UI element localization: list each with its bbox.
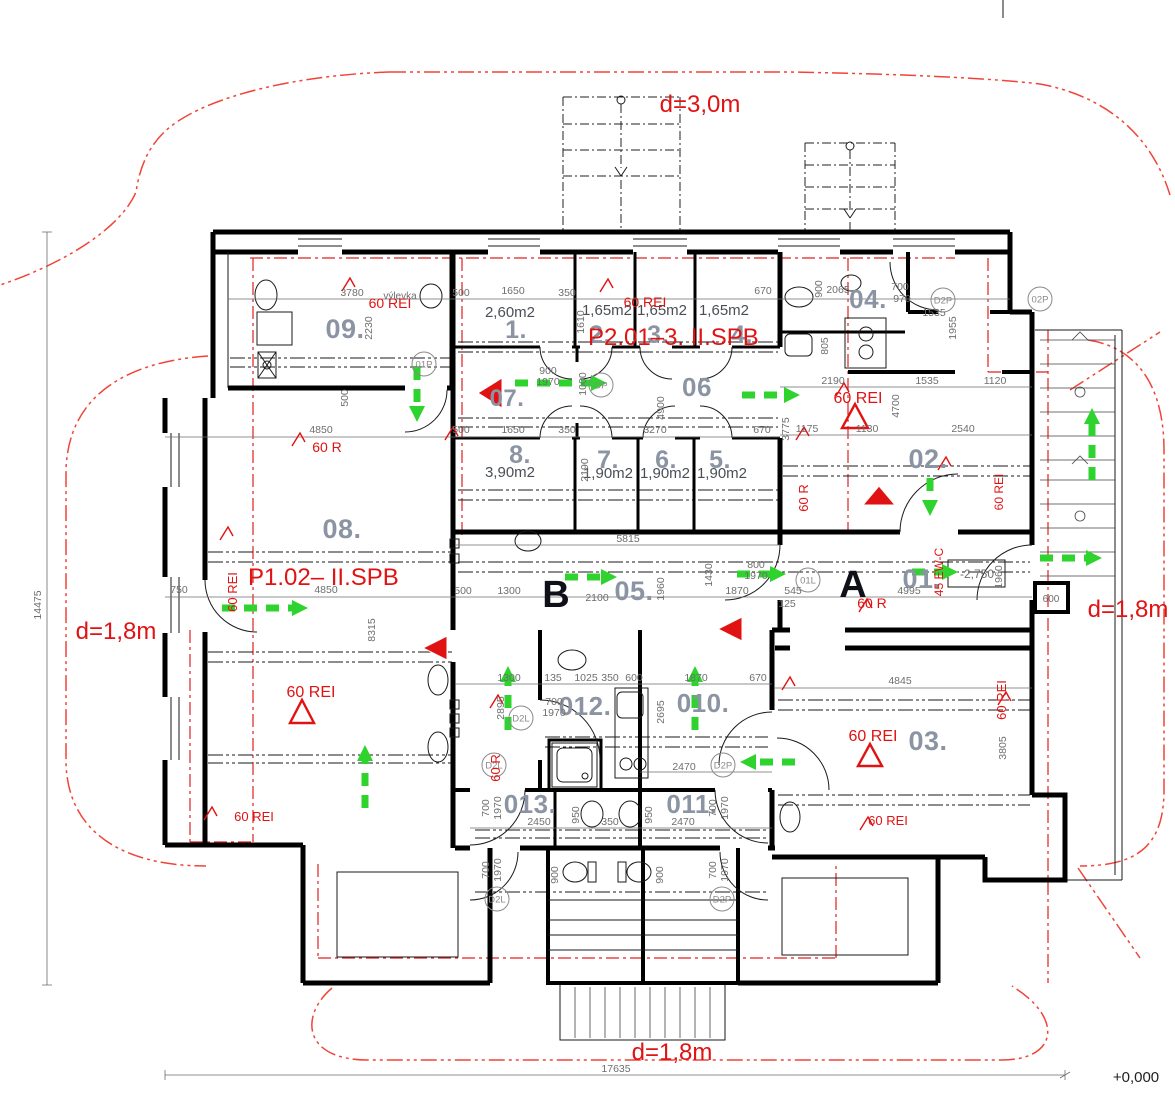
door-tag-label: 02P [1032, 295, 1049, 306]
dimension-label: 3775 [780, 417, 792, 441]
basin-icon [780, 802, 800, 832]
dimension-label: 8315 [366, 618, 378, 642]
porch-steps [575, 987, 710, 1038]
leader-hook [292, 433, 305, 446]
floor-drain-icon [258, 352, 276, 378]
dimension-label: 1130 [856, 423, 879, 435]
stair-down-arrow [615, 167, 627, 176]
door-tag-label: DP [594, 381, 607, 392]
porch-outline [560, 985, 725, 1040]
basin-icon [619, 801, 641, 827]
sink-icon [255, 280, 277, 310]
dimension-label: 135 [544, 672, 562, 684]
fire-annotation-label: 60 R [312, 439, 342, 455]
door-arc [405, 390, 447, 432]
stove-icon [845, 318, 886, 368]
dimension-label: 2470 [671, 816, 695, 828]
dimension-label: 4850 [314, 584, 338, 596]
fire-triangle-hollow [858, 744, 882, 766]
dimension-label: 1970 [744, 570, 768, 582]
room-area-label: 1,90m2 [640, 465, 690, 482]
toilet-icon [618, 862, 651, 882]
boundary-left [66, 356, 208, 866]
dimension-label: 1870 [684, 672, 708, 684]
escape-arrow-head [292, 600, 308, 616]
fire-annotation-label: d=1,8m [76, 618, 157, 645]
dimension-label: 2100 [585, 592, 609, 604]
fire-annotation-label: 60 R [796, 484, 811, 511]
dimension-label: 500 [454, 585, 472, 597]
room-number-label: 05. [614, 576, 653, 606]
boundary-diag-br [1078, 868, 1140, 958]
leader-hook [600, 279, 613, 292]
dimension-label: 2695 [655, 700, 667, 724]
dimension-label: 2065 [826, 284, 850, 296]
door-tag-label: D2P [714, 761, 732, 772]
floor-plan-drawing: DPD2P02P01L01PD2LD2LD2PD2LD2P 09.1.2.3.4… [0, 0, 1175, 1093]
dimension-label: 4850 [309, 424, 333, 436]
dimension-label: 700 [891, 281, 909, 293]
door-arc [700, 406, 732, 438]
door-tag-label: 01P [416, 360, 433, 371]
basin-icon [428, 665, 448, 695]
fire-annotation-label: 60 R [857, 595, 887, 611]
dimension-label: 950 [570, 806, 582, 824]
dimension-label: 1535 [915, 375, 939, 387]
dimension-label: 350 [601, 816, 619, 828]
fire-annotation-label: 60 REI [994, 680, 1009, 720]
dimension-label: 500 [339, 389, 351, 407]
dimension-label: 3780 [340, 287, 364, 299]
dimension-label: 1610 [575, 310, 587, 334]
door-tag-label: D2P [934, 296, 952, 307]
dimension-label: 1120 [984, 375, 1007, 387]
guide-line [458, 490, 778, 500]
dimension-lines [42, 232, 1070, 1080]
fire-annotation-label: 60 REI [624, 294, 667, 310]
basin-icon [581, 801, 603, 827]
dimension-label: 900 [654, 866, 666, 884]
fire-triangle-filled [423, 636, 447, 660]
dimension-label: 2190 [579, 458, 591, 482]
shower-icon [552, 743, 597, 787]
dimension-label: 500 [452, 287, 470, 299]
escape-arrow-head [357, 745, 373, 761]
terrace-left-inner [337, 872, 458, 957]
room-number-label: 08. [322, 514, 361, 544]
dimension-label: 600 [625, 672, 643, 684]
door-arc [719, 712, 772, 765]
basin-icon [558, 650, 586, 670]
escape-arrow-head [922, 500, 938, 516]
guide-line [208, 652, 452, 662]
dimension-label: 750 [170, 584, 188, 596]
dimension-label: 5815 [616, 533, 640, 545]
room-number-label: 013. [504, 789, 557, 819]
dimension-label: 2540 [951, 423, 975, 435]
room-number-label: 07. [490, 385, 525, 412]
toilet-icon [420, 284, 442, 308]
fire-annotation-label: 60 REI [834, 390, 883, 407]
burner-icon [620, 758, 632, 770]
dimension-label: 1970 [719, 796, 731, 820]
kitchen-sink-icon [785, 334, 812, 356]
guide-line [208, 755, 452, 763]
dimension-label: 125 [778, 598, 796, 610]
section-letter: B [542, 574, 569, 616]
fire-triangle-hollow [290, 700, 314, 723]
guide-line [778, 700, 1030, 710]
room-number-label: 012. [559, 691, 612, 721]
compartment-line [318, 864, 836, 958]
dimension-label: 1960 [655, 577, 667, 601]
dimension-label: 1000 [577, 372, 589, 396]
room-number-label: 03. [908, 726, 947, 756]
dimension-label: 670 [754, 285, 772, 297]
fire-annotation-label: 60 R [488, 754, 503, 781]
door-tag-label: D2L [512, 714, 529, 725]
fire-annotation-label: 60 REI [849, 728, 898, 745]
stove-burner-icon [859, 327, 873, 341]
dimension-label: 2450 [527, 816, 551, 828]
door-tag-label: 01L [800, 576, 816, 587]
fire-annotation-label: d=1,8m [632, 1039, 713, 1066]
escape-arrow-head [740, 754, 756, 770]
wall-right-bump [985, 795, 1065, 880]
dimension-label: 1970 [492, 858, 504, 882]
room-area-label: 2,60m2 [485, 304, 535, 321]
dimension-label: 1960 [993, 565, 1005, 589]
floor-plan-canvas: DPD2P02P01L01PD2LD2LD2PD2LD2P 09.1.2.3.4… [0, 0, 1175, 1093]
dimension-label: 3270 [643, 424, 667, 436]
room-area-label: 1,65m2 [699, 302, 749, 319]
escape-arrow-head [1084, 408, 1100, 424]
fire-annotation-label: P2.01–3. II.SPB [588, 324, 759, 351]
room-area-label: 3,90m2 [485, 464, 535, 481]
misc-label: výlevka [383, 291, 417, 302]
fire-annotation-label: 60 REI [868, 813, 908, 828]
cabinet-icon [257, 312, 292, 345]
boundary-top-left [0, 72, 390, 285]
dimension-label: 3805 [997, 736, 1009, 760]
fire-compartment-lines [190, 258, 1048, 983]
basin-icon [428, 732, 448, 762]
dimension-label: 1025 [574, 672, 598, 684]
dimension-label: 1870 [725, 585, 749, 597]
dimension-label: 1300 [497, 672, 521, 684]
stair-start-dot [846, 142, 854, 150]
fire-annotation-label: 60 REI [234, 809, 274, 824]
wall-hallA-bottom [772, 630, 1032, 648]
window-left [171, 433, 179, 760]
dimension-label: 1970 [542, 707, 566, 719]
dimension-label: 670 [753, 424, 771, 436]
terrace-right-inner [782, 878, 908, 955]
guide-line [475, 830, 768, 838]
dimension-label: 1535 [922, 307, 946, 319]
stove-burner-icon [859, 345, 873, 359]
boundary-top [390, 72, 1170, 195]
misc-label: -2,750 [960, 567, 994, 581]
guide-line [778, 795, 1030, 805]
toilet-icon [785, 287, 813, 307]
room-number-label: 02. [908, 444, 947, 474]
window-top [298, 239, 955, 246]
dimension-label: 350 [601, 672, 619, 684]
stair-dot [1075, 387, 1085, 397]
dimension-label: 350 [558, 287, 576, 299]
dimension-label: 17635 [601, 1063, 630, 1075]
dimension-label: 1650 [501, 424, 525, 436]
escape-arrow-head [770, 566, 786, 582]
dimension-label: 2470 [672, 761, 696, 773]
dimension-label: 4900 [655, 396, 667, 420]
toilet-icon [563, 862, 596, 882]
misc-label: 600 [1043, 594, 1060, 605]
dimension-label: 4995 [897, 585, 921, 597]
dimension-label: 1650 [501, 285, 525, 297]
guide-line [208, 552, 452, 562]
dimension-label: 2190 [821, 375, 845, 387]
dimension-label: 1430 [703, 563, 715, 587]
dimension-label: 700 [707, 799, 719, 817]
fire-annotation-label: 60 REI [992, 474, 1006, 511]
fire-annotation-label: 60 REI [225, 572, 240, 612]
dimension-label: 900 [549, 866, 561, 884]
compartment-line [988, 258, 1048, 372]
door-tag-label: D2L [488, 895, 505, 906]
door-arc [580, 406, 612, 438]
escape-arrow-head [409, 406, 425, 422]
fire-triangle-filled [863, 486, 895, 505]
dimension-label: 1300 [497, 585, 521, 597]
fire-annotation-label: d=3,0m [660, 91, 741, 118]
dimension-label: 500 [452, 424, 470, 436]
fire-triangle-filled [718, 617, 742, 641]
dimension-label: 2895 [495, 696, 507, 720]
dimension-label: 4700 [890, 394, 902, 418]
dimension-label: 14475 [32, 590, 44, 619]
door-tag-label: D2P [713, 895, 731, 906]
exterior-stair-top-right [805, 142, 895, 232]
escape-arrow-head [784, 387, 800, 403]
dimension-label: 805 [819, 337, 831, 355]
dimension-label: 4845 [888, 675, 912, 687]
room-number-label: 06 [682, 372, 712, 402]
stair-chevron [1072, 332, 1088, 464]
leader-hook [220, 527, 233, 540]
room-area-label: 1,90m2 [697, 465, 747, 482]
room-number-label: 09. [325, 314, 364, 344]
dimension-label: 700 [480, 861, 492, 879]
room-number-label: 010. [677, 688, 730, 718]
dimension-label: 950 [643, 806, 655, 824]
dimension-label: 700 [480, 799, 492, 817]
misc-label: +0,000 [1113, 1069, 1159, 1086]
stair-down-arrow [844, 209, 856, 218]
fire-annotation-label: 60 REI [287, 684, 336, 701]
dimension-label: 670 [749, 672, 767, 684]
dimension-label: 900 [813, 280, 825, 298]
dimension-label: 1970 [536, 376, 560, 388]
dimension-label: 350 [558, 424, 576, 436]
stair-dot [1075, 511, 1085, 521]
fire-annotation-label: 45 EW-C [932, 547, 946, 596]
fire-annotation-label: d=1,8m [1088, 596, 1169, 623]
dimension-label: 1175 [796, 423, 819, 435]
dimension-label: 1970 [719, 858, 731, 882]
dimension-label: 700 [707, 861, 719, 879]
dimension-label: 1955 [947, 316, 959, 340]
room-number-label: 04. [849, 284, 887, 314]
dimension-label: 545 [784, 585, 802, 597]
walls [165, 0, 1068, 1040]
dimension-label: 1970 [492, 796, 504, 820]
dimension-label: 2230 [363, 316, 375, 340]
terrace-left [303, 845, 490, 983]
dimension-label: 970 [893, 293, 911, 305]
